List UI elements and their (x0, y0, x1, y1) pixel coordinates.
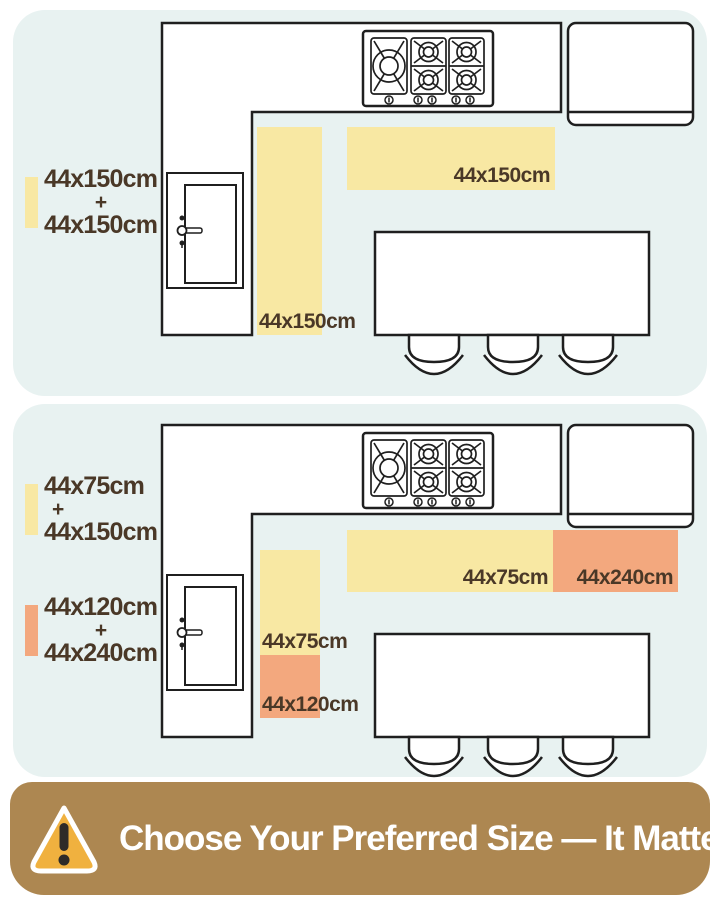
legend-size: 44x75cm (44, 475, 157, 498)
bottom-horizontal-yellow-rug: 44x75cm (347, 530, 553, 592)
rug-size-label: 44x240cm (577, 567, 673, 588)
rug-size-label: 44x150cm (454, 165, 550, 186)
rug-size-label: 44x75cm (262, 631, 347, 652)
bottom-vertical-orange-rug: 44x120cm (260, 655, 320, 718)
legend-top-yellow: 44x150cm + 44x150cm (25, 168, 157, 237)
legend-size: 44x150cm (44, 521, 157, 544)
top-horizontal-rug: 44x150cm (347, 127, 555, 190)
rug-size-label: 44x75cm (463, 567, 548, 588)
rug-size-label: 44x120cm (262, 694, 358, 715)
warning-triangle-icon (27, 803, 101, 875)
yellow-swatch (25, 484, 38, 535)
legend-size: 44x150cm (44, 168, 157, 191)
bottom-vertical-yellow-rug: 44x75cm (260, 550, 320, 655)
orange-swatch (25, 605, 38, 656)
top-vertical-rug: 44x150cm (257, 127, 322, 335)
infographic-page: 44x150cm 44x150cm 44x75cm 44x240cm 44x75… (0, 0, 720, 905)
rug-size-label: 44x150cm (259, 311, 355, 332)
legend-size: 44x150cm (44, 214, 157, 237)
bottom-banner: Choose Your Preferred Size — It Matters (10, 782, 710, 895)
legend-size: 44x240cm (44, 642, 157, 665)
yellow-swatch (25, 177, 38, 228)
bottom-horizontal-orange-rug: 44x240cm (553, 530, 678, 592)
legend-bottom-yellow: 44x75cm + 44x150cm (25, 475, 157, 544)
legend-bottom-orange: 44x120cm + 44x240cm (25, 596, 157, 665)
banner-title: Choose Your Preferred Size — It Matters (119, 819, 720, 859)
legend-size: 44x120cm (44, 596, 157, 619)
